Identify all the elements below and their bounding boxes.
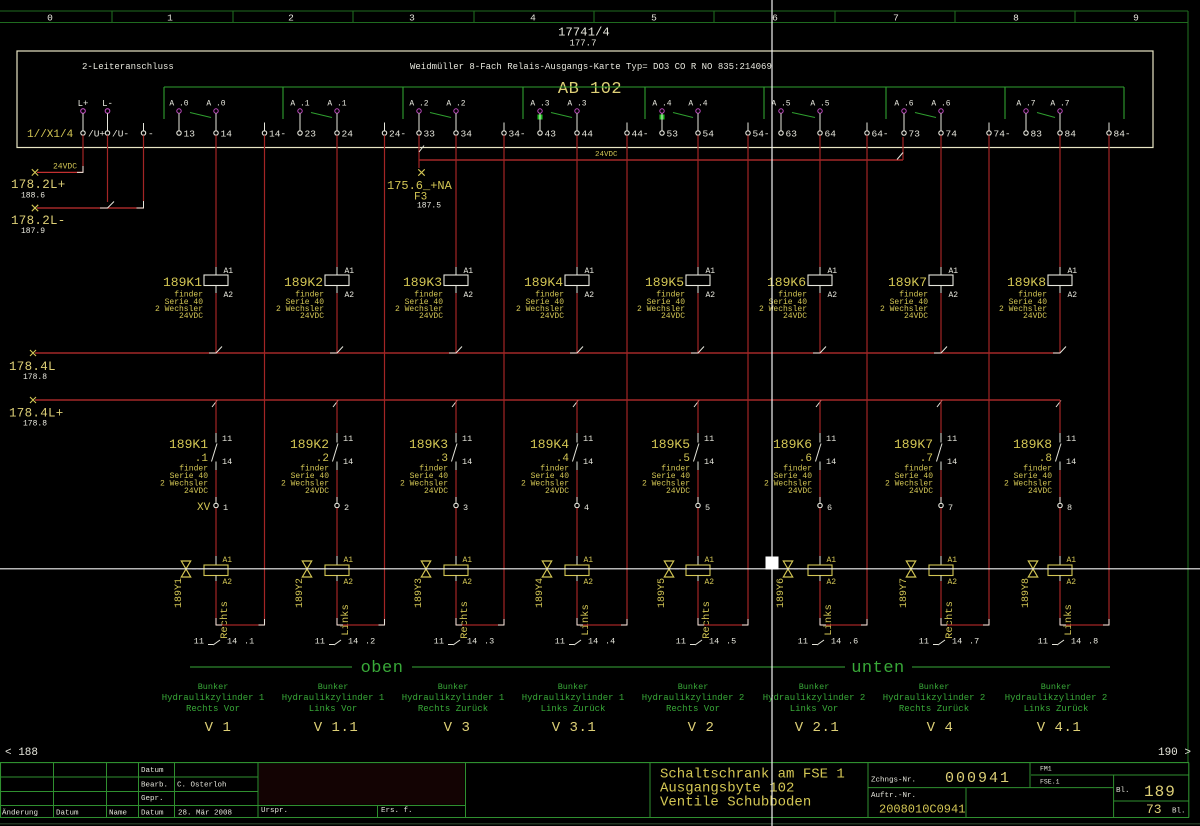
svg-text:74-: 74- <box>994 129 1011 140</box>
svg-text:11: 11 <box>947 434 957 444</box>
svg-text:14-: 14- <box>269 129 286 140</box>
svg-text:24VDC: 24VDC <box>305 487 329 496</box>
svg-text:1: 1 <box>223 503 228 513</box>
svg-text:Hydraulikzylinder 1: Hydraulikzylinder 1 <box>162 693 265 703</box>
svg-text:Links: Links <box>1063 604 1075 636</box>
svg-text:189Y3: 189Y3 <box>414 578 425 608</box>
svg-text:A1: A1 <box>949 267 959 276</box>
svg-text:14: 14 <box>227 637 237 647</box>
svg-text:14: 14 <box>221 129 233 140</box>
svg-text:AB 102: AB 102 <box>558 80 622 99</box>
svg-text:A1: A1 <box>706 267 716 276</box>
svg-text:189K2: 189K2 <box>290 437 329 452</box>
svg-text:A .2: A .2 <box>446 100 465 109</box>
svg-text:11: 11 <box>583 434 593 444</box>
svg-text:A1: A1 <box>345 267 355 276</box>
svg-text:24VDC: 24VDC <box>53 163 77 172</box>
svg-text:A .5: A .5 <box>810 100 829 109</box>
svg-text:/U-: /U- <box>112 129 129 140</box>
svg-text:V 3: V 3 <box>444 720 471 736</box>
svg-text:A1: A1 <box>948 556 958 565</box>
svg-text:Rechts Zurück: Rechts Zurück <box>418 704 488 714</box>
svg-text:.6: .6 <box>848 637 858 647</box>
svg-text:11: 11 <box>315 637 325 647</box>
svg-text:Links: Links <box>823 604 835 636</box>
svg-text:A2: A2 <box>223 578 233 587</box>
svg-text:.8: .8 <box>1039 453 1052 465</box>
svg-text:189K6: 189K6 <box>767 275 806 290</box>
svg-text:A1: A1 <box>1067 556 1077 565</box>
svg-text:190 >: 190 > <box>1158 747 1191 759</box>
svg-text:Hydraulikzylinder 1: Hydraulikzylinder 1 <box>282 693 385 703</box>
svg-text:V 3.1: V 3.1 <box>552 720 597 736</box>
svg-text:189K3: 189K3 <box>403 275 442 290</box>
svg-text:14: 14 <box>704 457 714 467</box>
svg-text:Hydraulikzylinder 2: Hydraulikzylinder 2 <box>883 693 986 703</box>
svg-text:Auftr.-Nr.: Auftr.-Nr. <box>871 792 916 800</box>
svg-text:FM1: FM1 <box>1040 766 1052 773</box>
svg-text:.1: .1 <box>244 637 254 647</box>
svg-text:11: 11 <box>704 434 714 444</box>
svg-text:14: 14 <box>588 637 598 647</box>
svg-text:A .3: A .3 <box>530 100 549 109</box>
svg-text:XV: XV <box>197 502 211 514</box>
svg-text:24VDC: 24VDC <box>545 487 569 496</box>
svg-text:24VDC: 24VDC <box>179 312 203 321</box>
svg-text:/U+: /U+ <box>88 129 105 140</box>
svg-text:A2: A2 <box>344 578 354 587</box>
svg-text:V 2: V 2 <box>688 720 715 736</box>
svg-text:34: 34 <box>461 129 473 140</box>
svg-text:11: 11 <box>462 434 472 444</box>
svg-text:64: 64 <box>825 129 837 140</box>
svg-text:24VDC: 24VDC <box>661 312 685 321</box>
svg-text:A2: A2 <box>949 291 959 300</box>
svg-text:A2: A2 <box>828 291 838 300</box>
svg-text:178.8: 178.8 <box>23 373 47 382</box>
svg-text:189K5: 189K5 <box>645 275 684 290</box>
svg-text:V 4: V 4 <box>927 720 954 736</box>
svg-text:Bl.: Bl. <box>1172 808 1186 816</box>
svg-text:5: 5 <box>651 13 657 24</box>
svg-text:Datum: Datum <box>56 810 79 818</box>
svg-text:Bunker: Bunker <box>198 682 229 692</box>
svg-text:A .2: A .2 <box>409 100 428 109</box>
svg-text:189K3: 189K3 <box>409 437 448 452</box>
svg-text:11: 11 <box>434 637 444 647</box>
svg-text:189K8: 189K8 <box>1007 275 1046 290</box>
svg-text:83: 83 <box>1031 129 1043 140</box>
svg-text:C. Osterloh: C. Osterloh <box>177 782 227 790</box>
svg-text:24VDC: 24VDC <box>540 312 564 321</box>
svg-text:.5: .5 <box>726 637 736 647</box>
svg-text:14: 14 <box>709 637 719 647</box>
svg-text:34-: 34- <box>509 129 526 140</box>
svg-text:Urspr.: Urspr. <box>261 807 288 815</box>
svg-text:73: 73 <box>909 129 921 140</box>
svg-text:A2: A2 <box>345 291 355 300</box>
svg-text:7: 7 <box>948 503 953 513</box>
svg-text:8: 8 <box>1013 13 1019 24</box>
svg-text:Bunker: Bunker <box>558 682 589 692</box>
svg-text:Links: Links <box>580 604 592 636</box>
svg-text:Hydraulikzylinder 2: Hydraulikzylinder 2 <box>763 693 866 703</box>
svg-text:6: 6 <box>827 503 832 513</box>
svg-text:8: 8 <box>1067 503 1072 513</box>
svg-text:2: 2 <box>288 13 294 24</box>
svg-text:Ers. f.: Ers. f. <box>381 807 413 815</box>
svg-text:189Y8: 189Y8 <box>1021 578 1032 608</box>
svg-text:V 1.1: V 1.1 <box>314 720 359 736</box>
svg-text:oben: oben <box>361 659 404 678</box>
svg-text:23: 23 <box>305 129 317 140</box>
svg-text:11: 11 <box>919 637 929 647</box>
svg-text:11: 11 <box>676 637 686 647</box>
svg-text:189K4: 189K4 <box>524 275 563 290</box>
svg-text:64-: 64- <box>872 129 889 140</box>
svg-text:A1: A1 <box>585 267 595 276</box>
svg-text:.8: .8 <box>1088 637 1098 647</box>
svg-text:A2: A2 <box>584 578 594 587</box>
svg-text:A .7: A .7 <box>1050 100 1069 109</box>
svg-text:A .1: A .1 <box>327 100 346 109</box>
svg-text:24VDC: 24VDC <box>1028 487 1052 496</box>
svg-text:A .4: A .4 <box>652 100 671 109</box>
svg-text:A2: A2 <box>705 578 715 587</box>
svg-text:V 4.1: V 4.1 <box>1037 720 1082 736</box>
svg-text:11: 11 <box>555 637 565 647</box>
svg-text:Rechts Vor: Rechts Vor <box>186 704 240 714</box>
svg-text:A2: A2 <box>585 291 595 300</box>
svg-text:24VDC: 24VDC <box>904 312 928 321</box>
svg-text:A2: A2 <box>948 578 958 587</box>
svg-text:11: 11 <box>222 434 232 444</box>
svg-text:178.2L+: 178.2L+ <box>11 178 66 192</box>
svg-text:.4: .4 <box>605 637 615 647</box>
svg-text:.5: .5 <box>677 453 690 465</box>
svg-text:53: 53 <box>667 129 679 140</box>
svg-text:Hydraulikzylinder 2: Hydraulikzylinder 2 <box>1005 693 1108 703</box>
svg-text:.7: .7 <box>969 637 979 647</box>
svg-text:Hydraulikzylinder 2: Hydraulikzylinder 2 <box>642 693 745 703</box>
svg-text:178.2L-: 178.2L- <box>11 214 66 228</box>
svg-text:Weidmüller 8-Fach Relais-Ausga: Weidmüller 8-Fach Relais-Ausgangs-Karte … <box>410 62 772 72</box>
svg-text:178.4L: 178.4L <box>9 360 56 374</box>
svg-text:Rechts: Rechts <box>944 601 956 639</box>
svg-text:A1: A1 <box>463 556 473 565</box>
svg-text:0: 0 <box>47 13 53 24</box>
svg-text:44: 44 <box>582 129 594 140</box>
svg-text:L+: L+ <box>78 99 89 109</box>
svg-text:L-: L- <box>102 99 113 109</box>
svg-text:3: 3 <box>463 503 468 513</box>
svg-text:.4: .4 <box>556 453 570 465</box>
svg-text:178.8: 178.8 <box>23 420 47 429</box>
svg-text:14: 14 <box>583 457 593 467</box>
svg-text:000941: 000941 <box>945 770 1011 787</box>
svg-text:189Y2: 189Y2 <box>295 578 306 608</box>
svg-text:1//X1/4: 1//X1/4 <box>27 129 74 141</box>
svg-text:Zchngs-Nr.: Zchngs-Nr. <box>871 777 916 785</box>
svg-text:177.7: 177.7 <box>569 39 596 49</box>
svg-text:11: 11 <box>1066 434 1076 444</box>
svg-text:Datum: Datum <box>141 810 164 818</box>
svg-text:189Y5: 189Y5 <box>657 578 668 608</box>
svg-text:Ventile Schubboden: Ventile Schubboden <box>660 795 811 811</box>
svg-text:24VDC: 24VDC <box>783 312 807 321</box>
svg-text:Rechts: Rechts <box>701 601 713 639</box>
svg-text:189Y6: 189Y6 <box>776 578 787 608</box>
svg-text:189K2: 189K2 <box>284 275 323 290</box>
svg-text:A2: A2 <box>1068 291 1078 300</box>
svg-text:.2: .2 <box>365 637 375 647</box>
svg-text:63: 63 <box>786 129 798 140</box>
svg-text:14: 14 <box>222 457 232 467</box>
svg-text:24VDC: 24VDC <box>419 312 443 321</box>
svg-text:189K5: 189K5 <box>651 437 690 452</box>
svg-text:V 1: V 1 <box>205 720 232 736</box>
svg-text:43: 43 <box>545 129 557 140</box>
svg-text:44-: 44- <box>632 129 649 140</box>
svg-text:.1: .1 <box>195 453 209 465</box>
svg-text:11: 11 <box>798 637 808 647</box>
svg-text:.3: .3 <box>435 453 448 465</box>
svg-text:Bunker: Bunker <box>1041 682 1072 692</box>
svg-text:Bunker: Bunker <box>678 682 709 692</box>
svg-text:187.9: 187.9 <box>21 227 45 236</box>
svg-text:74: 74 <box>946 129 958 140</box>
svg-text:54: 54 <box>703 129 715 140</box>
svg-text:14: 14 <box>343 457 353 467</box>
svg-text:73: 73 <box>1146 802 1162 817</box>
svg-text:14: 14 <box>462 457 472 467</box>
svg-text:17741/4: 17741/4 <box>558 26 610 40</box>
svg-text:unten: unten <box>851 659 905 678</box>
svg-text:Bl.: Bl. <box>1116 787 1130 795</box>
svg-text:.7: .7 <box>920 453 933 465</box>
svg-text:A1: A1 <box>464 267 474 276</box>
svg-text:2: 2 <box>344 503 349 513</box>
svg-text:24VDC: 24VDC <box>184 487 208 496</box>
svg-text:188.6: 188.6 <box>21 192 45 201</box>
svg-text:Bearb.: Bearb. <box>141 782 168 790</box>
svg-text:14: 14 <box>1071 637 1081 647</box>
svg-text:178.4L+: 178.4L+ <box>9 407 64 421</box>
svg-text:A .0: A .0 <box>206 100 225 109</box>
svg-text:A .7: A .7 <box>1016 100 1035 109</box>
svg-text:14: 14 <box>348 637 358 647</box>
svg-text:189K8: 189K8 <box>1013 437 1052 452</box>
svg-text:24: 24 <box>342 129 354 140</box>
svg-text:7: 7 <box>893 13 899 24</box>
svg-text:14: 14 <box>826 457 836 467</box>
svg-text:9: 9 <box>1133 13 1139 24</box>
svg-text:Rechts Zurück: Rechts Zurück <box>899 704 969 714</box>
svg-text:189Y7: 189Y7 <box>899 578 910 608</box>
svg-text:24VDC: 24VDC <box>909 487 933 496</box>
svg-text:11: 11 <box>826 434 836 444</box>
svg-text:Datum: Datum <box>141 767 164 775</box>
svg-text:Links: Links <box>340 604 352 636</box>
svg-text:14: 14 <box>467 637 477 647</box>
svg-text:24-: 24- <box>389 129 406 140</box>
svg-text:A1: A1 <box>705 556 715 565</box>
svg-text:Rechts: Rechts <box>219 601 231 639</box>
svg-text:A1: A1 <box>584 556 594 565</box>
svg-text:14: 14 <box>947 457 957 467</box>
svg-text:A .4: A .4 <box>688 100 707 109</box>
svg-text:189K4: 189K4 <box>530 437 569 452</box>
svg-text:Änderung: Änderung <box>2 809 38 818</box>
svg-text:< 188: < 188 <box>5 747 38 759</box>
svg-text:84-: 84- <box>1114 129 1131 140</box>
svg-text:A .1: A .1 <box>290 100 309 109</box>
svg-text:2-Leiteranschluss: 2-Leiteranschluss <box>82 62 174 72</box>
svg-text:Bunker: Bunker <box>318 682 349 692</box>
svg-text:33: 33 <box>424 129 436 140</box>
svg-text:84: 84 <box>1065 129 1077 140</box>
svg-text:5: 5 <box>705 503 710 513</box>
svg-text:A1: A1 <box>827 556 837 565</box>
svg-text:189K1: 189K1 <box>163 275 202 290</box>
svg-text:A1: A1 <box>828 267 838 276</box>
svg-text:189Y1: 189Y1 <box>174 578 185 608</box>
svg-text:-: - <box>148 129 154 140</box>
svg-text:Links Vor: Links Vor <box>309 704 358 714</box>
svg-text:1: 1 <box>167 13 173 24</box>
svg-text:3: 3 <box>409 13 415 24</box>
svg-text:54-: 54- <box>753 129 770 140</box>
svg-text:A2: A2 <box>224 291 234 300</box>
svg-text:14: 14 <box>831 637 841 647</box>
svg-text:A2: A2 <box>464 291 474 300</box>
svg-text:189: 189 <box>1144 783 1176 801</box>
svg-text:4: 4 <box>584 503 589 513</box>
svg-text:189Y4: 189Y4 <box>535 578 546 608</box>
svg-text:A2: A2 <box>1067 578 1077 587</box>
svg-text:A .6: A .6 <box>931 100 950 109</box>
svg-text:189K7: 189K7 <box>888 275 927 290</box>
svg-text:Links Zurück: Links Zurück <box>541 704 606 714</box>
svg-text:A .6: A .6 <box>894 100 913 109</box>
svg-text:.6: .6 <box>799 453 812 465</box>
svg-text:14: 14 <box>1066 457 1076 467</box>
svg-text:11: 11 <box>1038 637 1048 647</box>
svg-text:Name: Name <box>109 810 127 818</box>
svg-text:4: 4 <box>530 13 536 24</box>
svg-text:A2: A2 <box>706 291 716 300</box>
svg-text:2008010C0941: 2008010C0941 <box>879 803 965 817</box>
svg-text:187.5: 187.5 <box>417 202 441 211</box>
svg-text:24VDC: 24VDC <box>788 487 812 496</box>
svg-text:6: 6 <box>772 13 778 24</box>
svg-text:V 2.1: V 2.1 <box>795 720 840 736</box>
svg-text:189K6: 189K6 <box>773 437 812 452</box>
svg-text:Bunker: Bunker <box>919 682 950 692</box>
svg-text:Hydraulikzylinder 1: Hydraulikzylinder 1 <box>402 693 505 703</box>
svg-text:A1: A1 <box>1068 267 1078 276</box>
svg-text:24VDC: 24VDC <box>424 487 448 496</box>
svg-text:13: 13 <box>184 129 196 140</box>
svg-text:189K1: 189K1 <box>169 437 208 452</box>
svg-text:Links Zurück: Links Zurück <box>1024 704 1089 714</box>
svg-text:Bunker: Bunker <box>438 682 469 692</box>
svg-text:A .3: A .3 <box>567 100 586 109</box>
svg-text:FSE.1: FSE.1 <box>1040 779 1060 786</box>
svg-text:A .5: A .5 <box>771 100 790 109</box>
svg-text:189K7: 189K7 <box>894 437 933 452</box>
svg-text:A1: A1 <box>224 267 234 276</box>
svg-text:.3: .3 <box>484 637 494 647</box>
svg-text:A2: A2 <box>463 578 473 587</box>
svg-text:Rechts Vor: Rechts Vor <box>666 704 720 714</box>
svg-text:14: 14 <box>952 637 962 647</box>
svg-text:Hydraulikzylinder 1: Hydraulikzylinder 1 <box>522 693 625 703</box>
svg-text:A1: A1 <box>223 556 233 565</box>
svg-text:.2: .2 <box>316 453 329 465</box>
svg-text:28. Mär 2008: 28. Mär 2008 <box>178 810 232 818</box>
svg-text:11: 11 <box>343 434 353 444</box>
svg-text:Rechts: Rechts <box>459 601 471 639</box>
svg-text:24VDC: 24VDC <box>300 312 324 321</box>
svg-text:Bunker: Bunker <box>799 682 830 692</box>
svg-text:Gepr.: Gepr. <box>141 795 164 803</box>
svg-text:Links Vor: Links Vor <box>790 704 839 714</box>
svg-text:24VDC: 24VDC <box>666 487 690 496</box>
svg-text:24VDC: 24VDC <box>595 151 618 159</box>
svg-text:A2: A2 <box>827 578 837 587</box>
svg-text:A1: A1 <box>344 556 354 565</box>
svg-text:A .0: A .0 <box>169 100 188 109</box>
svg-text:11: 11 <box>194 637 204 647</box>
svg-text:24VDC: 24VDC <box>1023 312 1047 321</box>
